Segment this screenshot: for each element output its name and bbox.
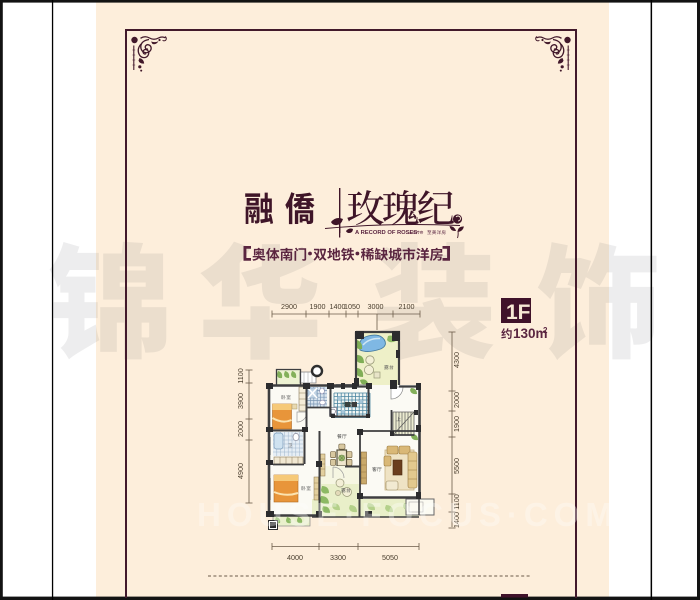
svg-text:4300: 4300 — [452, 352, 461, 368]
svg-text:2100: 2100 — [399, 302, 415, 311]
svg-text:1050: 1050 — [344, 302, 360, 311]
svg-text:3000: 3000 — [368, 302, 384, 311]
svg-text:2: 2 — [543, 326, 548, 335]
svg-text:4900: 4900 — [236, 463, 245, 479]
svg-text:4000: 4000 — [287, 553, 303, 562]
svg-text:HOUSE·FOCUS·COM: HOUSE·FOCUS·COM — [197, 496, 619, 533]
svg-text:1900: 1900 — [452, 416, 461, 432]
svg-text:1900: 1900 — [310, 302, 326, 311]
svg-text:5500: 5500 — [452, 458, 461, 474]
svg-text:1F: 1F — [506, 301, 531, 324]
svg-text:3300: 3300 — [330, 553, 346, 562]
svg-text:2000: 2000 — [452, 392, 461, 408]
svg-text:5050: 5050 — [382, 553, 398, 562]
svg-text:1100: 1100 — [236, 368, 245, 383]
svg-text:3900: 3900 — [236, 393, 245, 409]
svg-text:A RECORD OF ROSES: A RECORD OF ROSES — [355, 230, 417, 236]
svg-text:2900: 2900 — [281, 302, 297, 311]
svg-text:2000: 2000 — [236, 421, 245, 437]
